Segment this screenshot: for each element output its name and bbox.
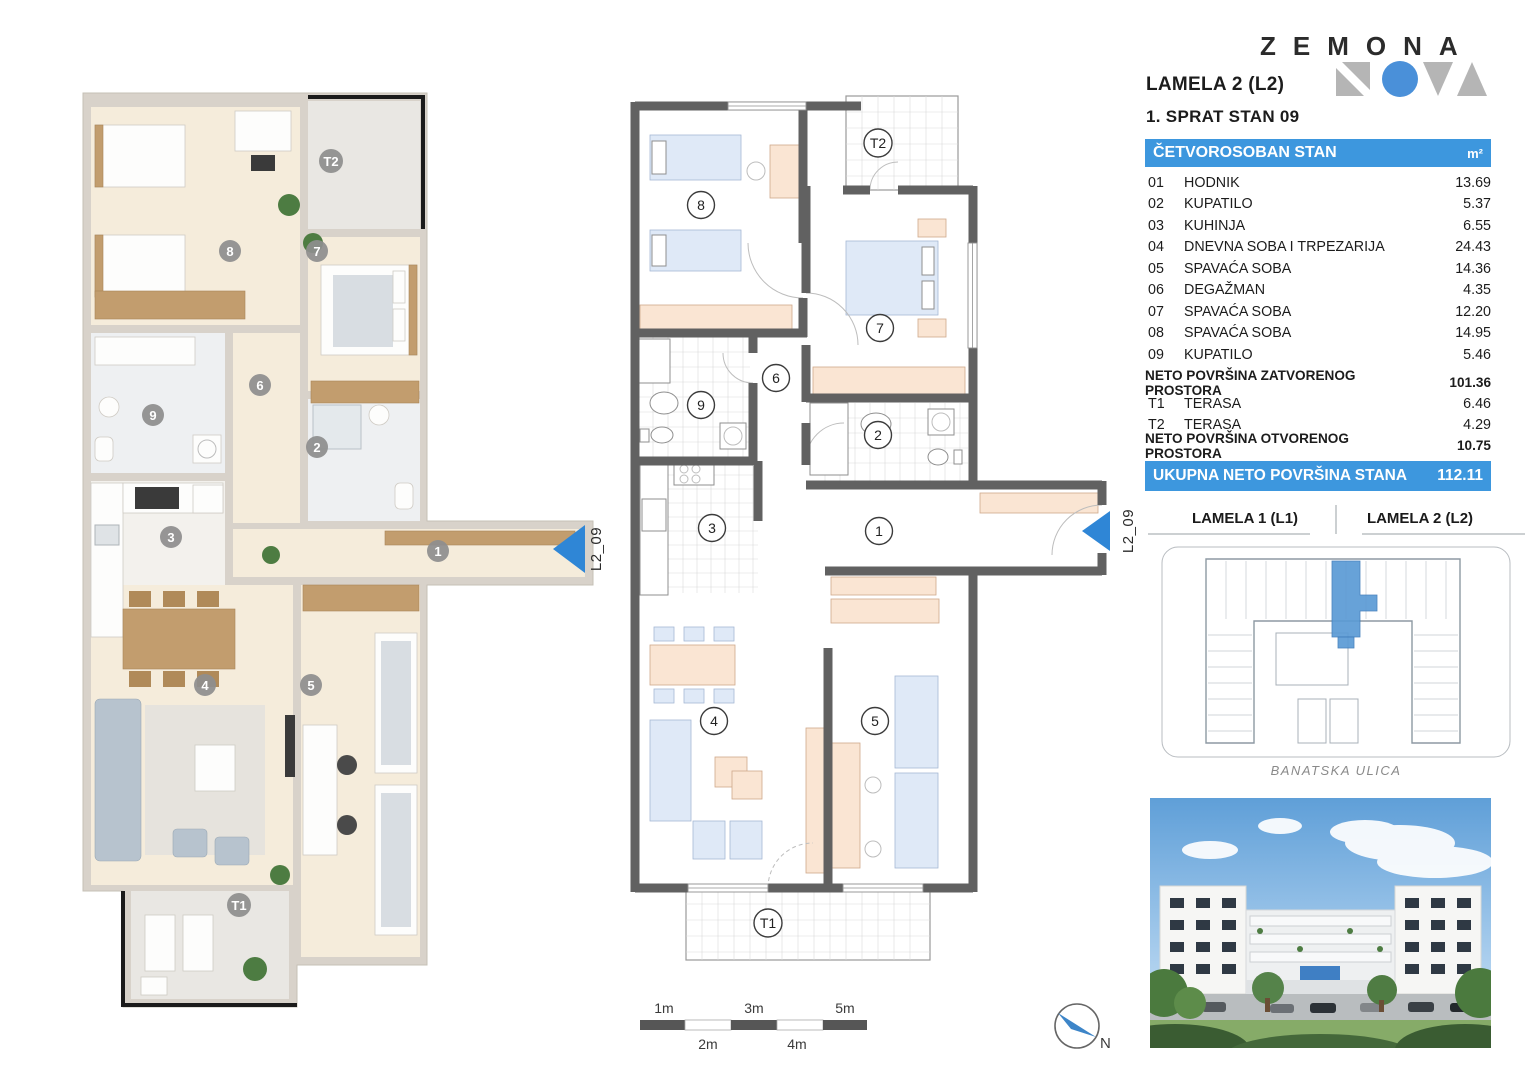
summary-row-closed: NETO POVRŠINA ZATVORENOG PROSTORA101.36 <box>1145 372 1491 393</box>
scale-bar: 1m 3m 5m 2m 4m <box>640 1000 867 1052</box>
street-label: BANATSKA ULICA <box>1271 763 1402 778</box>
room-badge: 6 <box>772 370 780 386</box>
table-row: 04DNEVNA SOBA I TRPEZARIJA24.43 <box>1145 237 1491 259</box>
floor-plan-brochure-page: L2_09 1 2 3 4 5 6 7 8 9 T1 T2 <box>0 0 1527 1080</box>
building-title: LAMELA 2 (L2) <box>1146 74 1284 96</box>
row-num: 05 <box>1145 261 1184 277</box>
compass-north-label: N <box>1100 1035 1111 1052</box>
room-badge: T1 <box>760 915 777 931</box>
room-badge: 3 <box>708 520 716 536</box>
row-num: 07 <box>1145 304 1184 320</box>
entrance-arrow-icon <box>1082 511 1110 551</box>
area-summary: NETO POVRŠINA ZATVORENOG PROSTORA101.36 … <box>1145 372 1491 456</box>
room-badge: 5 <box>307 678 314 693</box>
room-badge: 7 <box>876 320 884 336</box>
row-name: SPAVAĆA SOBA <box>1184 304 1427 320</box>
summary-label: NETO POVRŠINA ZATVORENOG PROSTORA <box>1145 368 1427 398</box>
row-area: 14.95 <box>1427 325 1491 341</box>
row-num: 03 <box>1145 218 1184 234</box>
summary-label: NETO POVRŠINA OTVORENOG PROSTORA <box>1145 431 1427 461</box>
scale-label-5m: 5m <box>835 1000 854 1016</box>
apartment-type-header: ČETVOROSOBAN STAN m² <box>1145 139 1491 167</box>
scale-label-1m: 1m <box>654 1000 673 1016</box>
compass: N <box>1055 1004 1111 1052</box>
room-badge: 9 <box>697 397 705 413</box>
apartment-type-label: ČETVOROSOBAN STAN <box>1153 144 1337 162</box>
room-badge: 8 <box>697 197 705 213</box>
table-row: 03KUHINJA6.55 <box>1145 215 1491 237</box>
row-area: 5.37 <box>1427 196 1491 212</box>
row-name: SPAVAĆA SOBA <box>1184 261 1427 277</box>
entrance-label-2d: L2_09 <box>1120 509 1137 553</box>
scale-bar-and-compass: 1m 3m 5m 2m 4m N <box>630 993 1150 1073</box>
room-badge: 2 <box>313 440 320 455</box>
cars <box>1168 1002 1474 1013</box>
scale-label-3m: 3m <box>744 1000 763 1016</box>
table-row: 09KUPATILO5.46 <box>1145 344 1491 366</box>
storefront-sign <box>1300 966 1340 982</box>
row-name: HODNIK <box>1184 175 1427 191</box>
room-badge: T2 <box>323 154 338 169</box>
room-area-table: 01HODNIK13.69 02KUPATILO5.37 03KUHINJA6.… <box>1145 172 1491 366</box>
row-num: 04 <box>1145 239 1184 255</box>
row-area: 6.55 <box>1427 218 1491 234</box>
row-name: KUHINJA <box>1184 218 1427 234</box>
room-badge: 3 <box>167 530 174 545</box>
row-name: DEGAŽMAN <box>1184 282 1427 298</box>
row-area: 5.46 <box>1427 347 1491 363</box>
table-row: 02KUPATILO5.37 <box>1145 194 1491 216</box>
room-badge: T1 <box>231 898 246 913</box>
entrance-label-3d: L2_09 <box>588 527 605 571</box>
floor-plan-2d: L2_09 1 2 3 4 5 6 7 8 9 T1 T2 <box>628 93 1148 993</box>
row-area: 24.43 <box>1427 239 1491 255</box>
row-area: 4.35 <box>1427 282 1491 298</box>
zemona-nova-logo: ZEMONA <box>1256 26 1496 102</box>
room-badge: 4 <box>710 713 718 729</box>
summary-row-open: NETO POVRŠINA OTVORENOG PROSTORA10.75 <box>1145 435 1491 456</box>
scale-label-4m: 4m <box>787 1036 806 1052</box>
row-area: 4.29 <box>1427 417 1491 433</box>
row-name: KUPATILO <box>1184 196 1427 212</box>
total-label: UKUPNA NETO POVRŠINA STANA <box>1153 467 1407 485</box>
highlighted-unit-tab <box>1338 637 1354 648</box>
row-area: 12.20 <box>1427 304 1491 320</box>
room-badge: 8 <box>226 244 233 259</box>
lamela2-label: LAMELA 2 (L2) <box>1367 510 1473 527</box>
room-badge: 1 <box>875 523 883 539</box>
beds-sofas-2d <box>650 135 938 868</box>
row-num: 09 <box>1145 347 1184 363</box>
table-row: 08SPAVAĆA SOBA14.95 <box>1145 323 1491 345</box>
row-num: 02 <box>1145 196 1184 212</box>
balconies <box>1250 916 1391 962</box>
row-area: 14.36 <box>1427 261 1491 277</box>
row-num: T1 <box>1145 396 1184 412</box>
floor-plan-3d: L2_09 1 2 3 4 5 6 7 8 9 T1 T2 <box>75 85 620 1015</box>
total-area-bar: UKUPNA NETO POVRŠINA STANA 112.11 <box>1145 461 1491 491</box>
row-name: TERASA <box>1184 396 1427 412</box>
entrance-arrow-2d: L2_09 <box>1082 509 1137 553</box>
table-row: 05SPAVAĆA SOBA14.36 <box>1145 258 1491 280</box>
room-badge: 2 <box>874 427 882 443</box>
row-name: DNEVNA SOBA I TRPEZARIJA <box>1184 239 1427 255</box>
logo-wordmark: ZEMONA <box>1260 31 1475 61</box>
building-render-photo <box>1150 798 1491 1048</box>
row-name: SPAVAĆA SOBA <box>1184 325 1427 341</box>
floor-unit-title: 1. SPRAT STAN 09 <box>1146 107 1299 127</box>
room-badge: 4 <box>201 678 209 693</box>
room-badge: T2 <box>870 135 887 151</box>
row-name: KUPATILO <box>1184 347 1427 363</box>
room-badge: 7 <box>313 244 320 259</box>
row-num: 08 <box>1145 325 1184 341</box>
unit-label: m² <box>1467 146 1483 161</box>
room-badge: 6 <box>256 378 263 393</box>
site-plan: LAMELA 1 (L1) LAMELA 2 (L2) BANATSKA ULI… <box>1148 503 1525 791</box>
table-row: 01HODNIK13.69 <box>1145 172 1491 194</box>
row-area: 13.69 <box>1427 175 1491 191</box>
triangle-a-icon <box>1457 62 1487 96</box>
triangle-v-icon <box>1423 62 1453 96</box>
room-badge: 9 <box>149 408 156 423</box>
table-row: 07SPAVAĆA SOBA12.20 <box>1145 301 1491 323</box>
row-num: 06 <box>1145 282 1184 298</box>
row-num: 01 <box>1145 175 1184 191</box>
summary-value: 101.36 <box>1427 375 1491 390</box>
room-badge: 1 <box>434 544 441 559</box>
table-row: T1TERASA6.46 <box>1145 393 1491 414</box>
total-value: 112.11 <box>1437 467 1483 485</box>
logo-nova-mark <box>1336 61 1487 97</box>
table-row: 06DEGAŽMAN4.35 <box>1145 280 1491 302</box>
lamela1-label: LAMELA 1 (L1) <box>1192 510 1298 527</box>
room-badge: 5 <box>871 713 879 729</box>
scale-label-2m: 2m <box>698 1036 717 1052</box>
row-area: 6.46 <box>1427 396 1491 412</box>
circle-o-icon <box>1382 61 1418 97</box>
summary-value: 10.75 <box>1427 438 1491 453</box>
